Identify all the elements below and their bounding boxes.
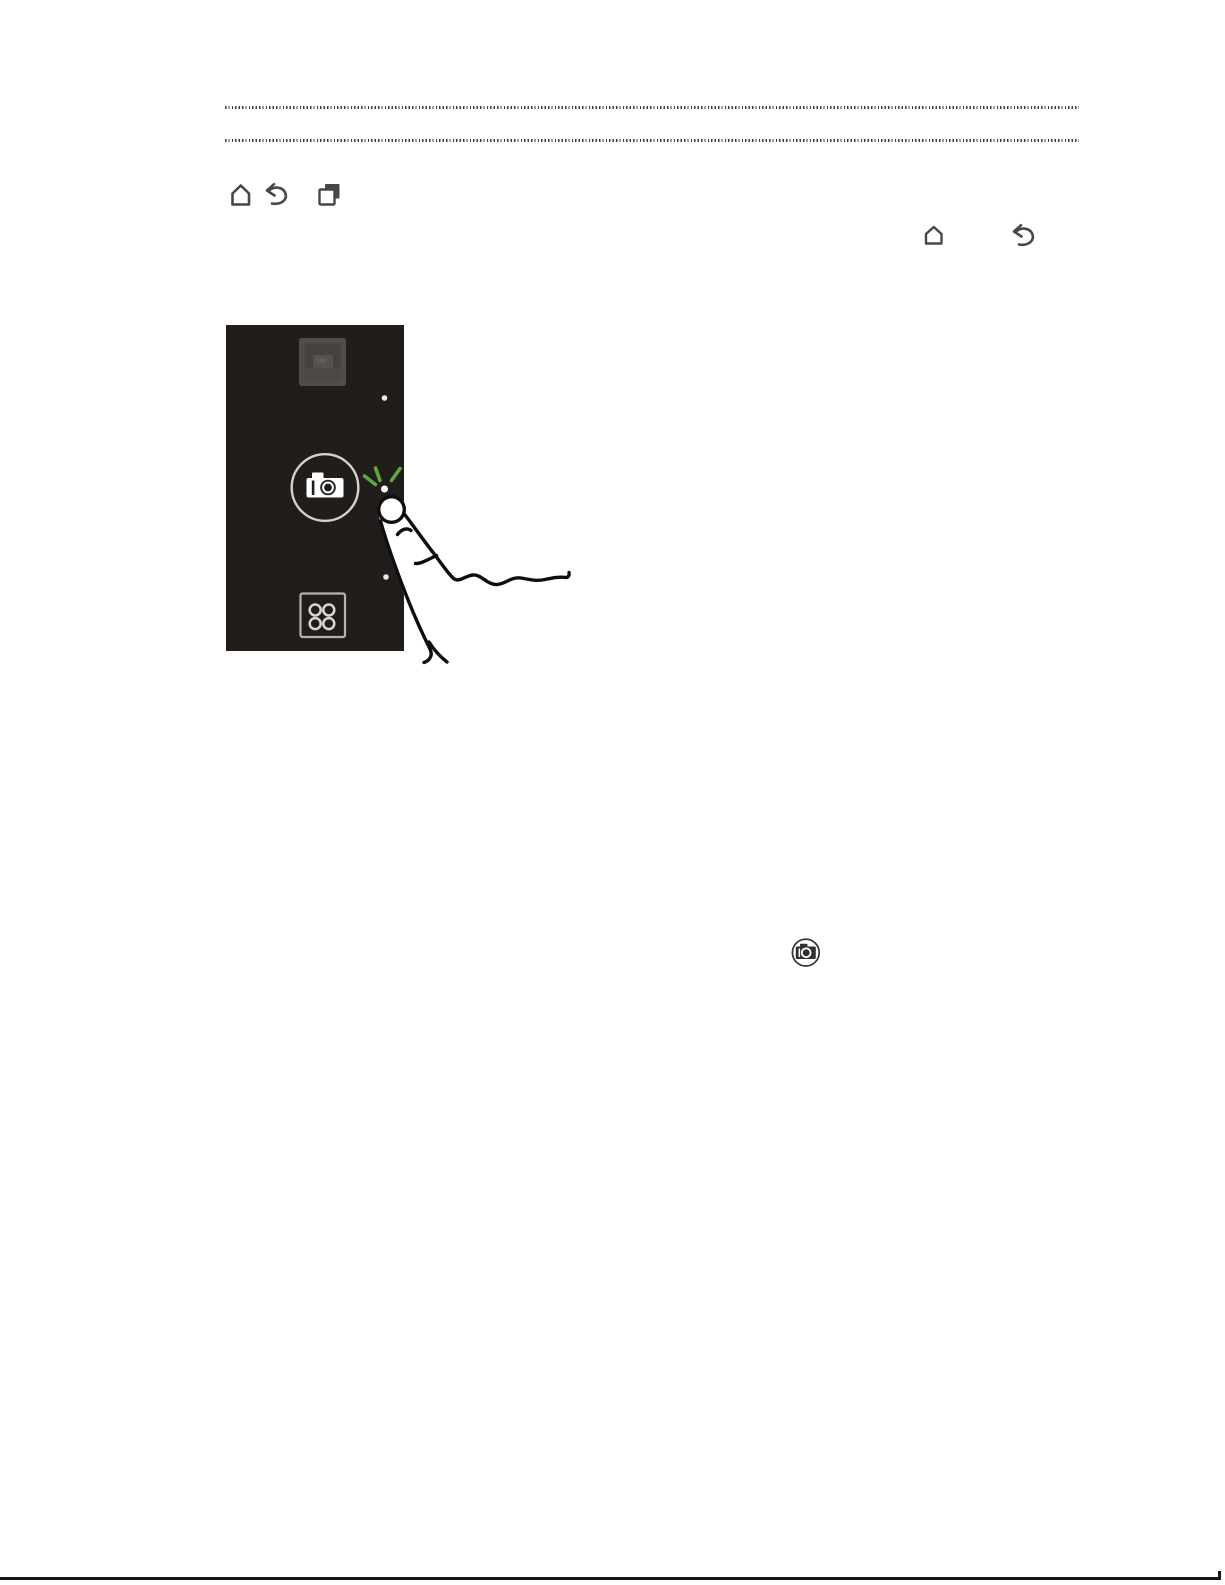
recent-apps-icon xyxy=(320,184,340,205)
back-icon xyxy=(1008,222,1038,253)
indicator-dot-bottom xyxy=(383,574,389,580)
home-icon xyxy=(923,224,945,251)
dotted-divider-top xyxy=(225,106,1079,109)
gallery-widget-icon xyxy=(299,338,346,386)
back-icon xyxy=(267,184,286,204)
page-bottom-rule xyxy=(0,1577,1221,1580)
dotted-divider-bottom xyxy=(225,139,1079,142)
phone-screen-figure xyxy=(226,325,572,670)
tap-indicator-dot xyxy=(381,486,388,493)
nav-buttons-figure xyxy=(229,181,349,209)
page-bottom-rule-tick xyxy=(1218,1571,1221,1580)
camera-inline-icon xyxy=(790,937,822,974)
home-icon xyxy=(233,186,250,205)
indicator-dot-top xyxy=(382,395,388,401)
pointing-finger-illustration xyxy=(379,497,569,663)
